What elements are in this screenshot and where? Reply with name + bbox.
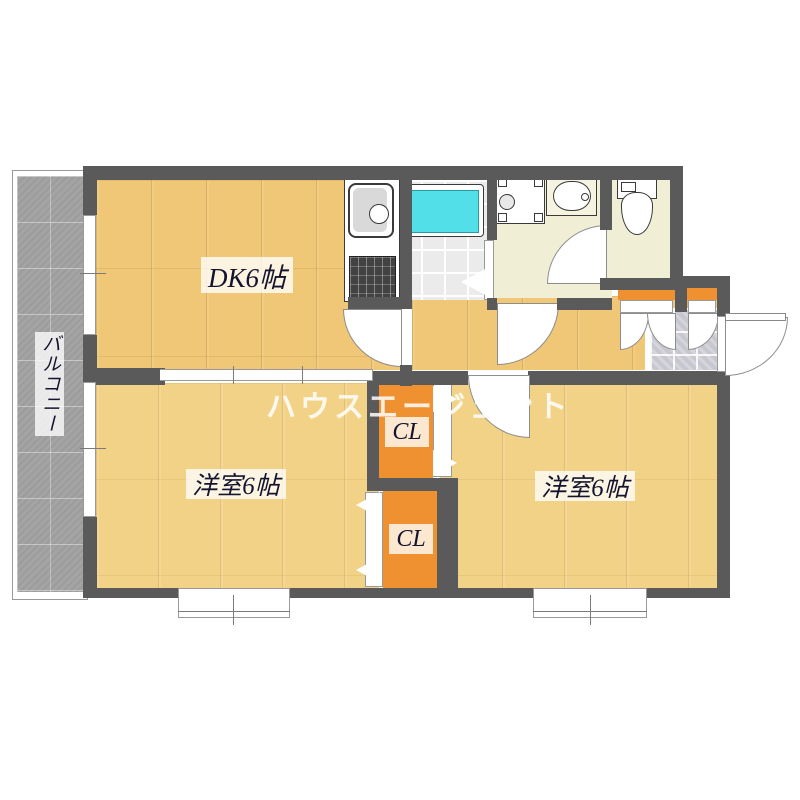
- wall-toilet-right: [670, 166, 683, 290]
- wall-closet-divider: [367, 478, 437, 491]
- wall-left-c: [83, 517, 97, 598]
- shoe-cabinet-right-panel: [688, 300, 716, 313]
- bottom-window-left-tick: [233, 595, 234, 625]
- balcony-label: バルコニー: [35, 332, 64, 436]
- wall-kitchen-bath: [400, 166, 412, 309]
- wall-closet2-right: [437, 478, 458, 598]
- wall-toilet-bottom: [600, 278, 683, 290]
- bottom-window-right-tick: [590, 595, 591, 625]
- balcony-window-bedroom: [83, 382, 96, 517]
- balcony-window-bedroom-tick: [80, 448, 106, 449]
- watermark-text: ハウスエージェント: [266, 382, 571, 426]
- wall-top: [83, 166, 683, 180]
- room-label-western-right: 洋室6帖: [535, 471, 635, 501]
- wall-under-stove: [348, 297, 412, 309]
- bathtub: [409, 190, 479, 233]
- balcony-window-dk: [83, 215, 96, 335]
- gas-stove: [349, 256, 396, 300]
- wall-washroom-bottom-right: [557, 298, 612, 310]
- bottom-window-left-line: [178, 611, 290, 612]
- pan-corner-br: [534, 213, 543, 222]
- closet-lower-label: CL: [389, 524, 433, 554]
- shoe-cabinet-left-panel: [620, 300, 673, 313]
- entrance-door-leaf: [725, 313, 786, 321]
- shoe-cabinet-right: [687, 286, 717, 300]
- wall-cabinet-post: [675, 286, 687, 312]
- wall-left-a: [83, 166, 97, 215]
- sliding-partition-tick-1: [233, 366, 234, 384]
- balcony-window-dk-tick: [80, 273, 106, 274]
- pan-corner-bl: [498, 213, 507, 222]
- wall-right-upper: [717, 276, 730, 318]
- toilet-tank-buttons: [621, 182, 636, 192]
- wall-washroom-bottom-left: [487, 298, 497, 310]
- wall-bath-washroom: [487, 166, 497, 240]
- wall-washroom-toilet: [600, 166, 612, 230]
- bottom-window-left: [178, 588, 290, 618]
- vanity-drain-icon: [581, 193, 589, 201]
- pan-drain-icon: [499, 194, 515, 210]
- entrance-door-swing: [725, 317, 788, 376]
- sliding-partition: [160, 369, 373, 381]
- wall-right-lower: [717, 368, 730, 598]
- kitchen-faucet-icon: [369, 204, 389, 224]
- floor-plan: DK6帖 洋室6帖 洋室6帖 CL CL バルコニー ハウスエージェント: [0, 0, 800, 800]
- room-label-western-left: 洋室6帖: [186, 469, 286, 499]
- room-label-dk: DK6帖: [201, 257, 293, 293]
